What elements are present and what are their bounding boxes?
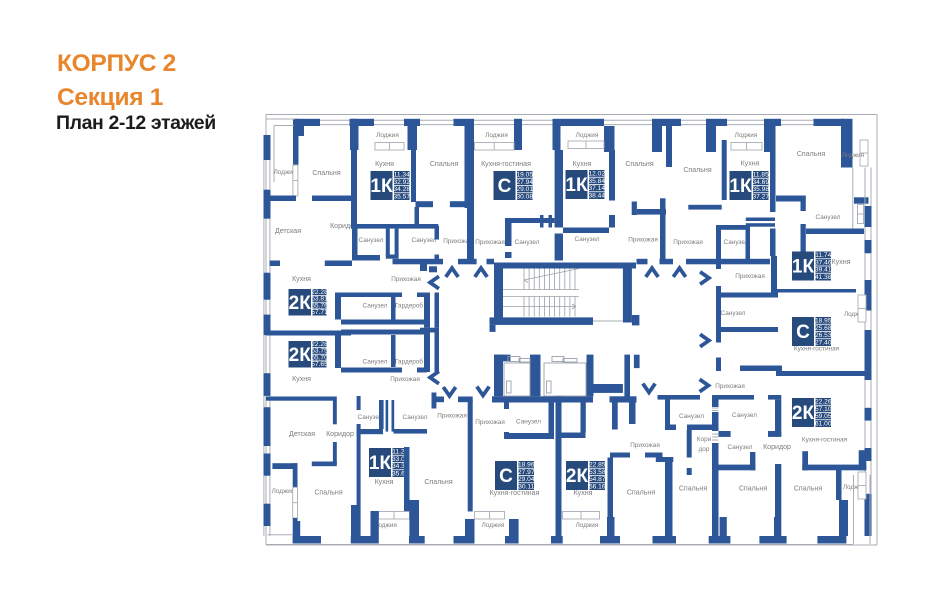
svg-text:29.01: 29.01: [516, 186, 533, 193]
svg-text:19.05: 19.05: [516, 172, 533, 179]
svg-text:Лоджия: Лоджия: [842, 152, 864, 159]
svg-text:Прихожая: Прихожая: [391, 276, 421, 283]
svg-text:Санузел: Санузел: [724, 239, 749, 246]
svg-text:12.02: 12.02: [588, 171, 605, 178]
svg-text:22.26: 22.26: [815, 399, 832, 406]
svg-text:Секция 1: Секция 1: [57, 84, 163, 111]
svg-text:30.08: 30.08: [516, 193, 533, 200]
svg-text:35.98: 35.98: [752, 186, 769, 193]
svg-text:1К: 1К: [370, 176, 393, 197]
svg-text:Детская: Детская: [289, 431, 315, 438]
svg-text:Коридор: Коридор: [326, 431, 354, 438]
svg-text:Спальня: Спальня: [314, 490, 342, 497]
svg-text:Коридор: Коридор: [763, 444, 791, 451]
svg-text:Кухня: Кухня: [292, 276, 311, 283]
svg-text:Лоджия: Лоджия: [735, 132, 758, 139]
svg-text:37.27: 37.27: [752, 193, 769, 200]
svg-text:Санузел: Санузел: [359, 237, 384, 244]
svg-text:Спальня: Спальня: [679, 486, 707, 493]
svg-text:Санузел: Санузел: [515, 239, 540, 246]
svg-text:Лоджия: Лоджия: [576, 132, 599, 139]
svg-text:34.69: 34.69: [752, 179, 769, 186]
svg-text:Санузел: Санузел: [516, 419, 541, 426]
svg-text:61.00: 61.00: [815, 420, 832, 427]
svg-text:32.92: 32.92: [393, 179, 410, 186]
svg-text:дор: дор: [699, 446, 710, 453]
svg-text:57.65: 57.65: [311, 361, 328, 368]
svg-text:С: С: [796, 322, 810, 343]
svg-text:Санузел: Санузел: [728, 444, 753, 451]
svg-text:35.84: 35.84: [588, 178, 605, 185]
svg-text:1К: 1К: [792, 257, 815, 278]
svg-text:Санузел: Санузел: [816, 214, 841, 221]
svg-text:Спальня: Спальня: [424, 479, 452, 486]
svg-text:37.14: 37.14: [588, 185, 605, 192]
svg-text:Санузел: Санузел: [358, 414, 383, 421]
svg-text:Спальня: Спальня: [627, 490, 655, 497]
svg-text:Кухня: Кухня: [375, 479, 394, 486]
svg-text:29.04: 29.04: [518, 476, 535, 483]
svg-text:Спальня: Спальня: [683, 167, 711, 174]
svg-text:Санузел: Санузел: [732, 412, 757, 419]
svg-text:41.38: 41.38: [815, 274, 832, 281]
svg-text:С: С: [498, 176, 512, 197]
svg-text:Кухня-гостиная: Кухня-гостиная: [802, 437, 848, 444]
svg-text:Гардероб: Гардероб: [395, 358, 423, 366]
svg-text:2К: 2К: [289, 293, 312, 314]
svg-text:34.28: 34.28: [393, 186, 410, 193]
svg-text:37.46: 37.46: [815, 259, 832, 266]
svg-text:Лоджия: Лоджия: [482, 522, 505, 529]
svg-text:Гардероб: Гардероб: [395, 302, 423, 310]
svg-text:Санузел: Санузел: [721, 310, 746, 317]
svg-text:Прихожая: Прихожая: [628, 237, 658, 244]
svg-text:2К: 2К: [289, 345, 312, 366]
svg-text:Прихожая: Прихожая: [715, 383, 745, 390]
svg-text:Лоджия: Лоджия: [485, 132, 508, 139]
svg-text:39.41: 39.41: [815, 267, 832, 274]
svg-text:Спальня: Спальня: [625, 161, 653, 168]
svg-text:35.57: 35.57: [393, 193, 410, 200]
svg-text:Кухня: Кухня: [573, 161, 592, 168]
svg-text:Кухня: Кухня: [574, 490, 593, 497]
svg-text:Кухня: Кухня: [292, 376, 311, 383]
svg-text:Спальня: Спальня: [312, 170, 340, 177]
svg-text:Кухня: Кухня: [741, 161, 760, 168]
svg-text:56.16: 56.16: [589, 483, 606, 490]
svg-text:Кухня-гостиная: Кухня-гостиная: [794, 346, 840, 353]
svg-text:27.97: 27.97: [518, 469, 535, 476]
svg-text:Санузел: Санузел: [412, 237, 437, 244]
svg-text:Лоджия: Лоджия: [576, 522, 599, 529]
svg-text:1К: 1К: [565, 175, 588, 196]
svg-text:54.87: 54.87: [589, 476, 606, 483]
svg-text:27.94: 27.94: [516, 179, 533, 186]
svg-text:Санузел: Санузел: [679, 413, 704, 420]
svg-text:КОРПУС 2: КОРПУС 2: [57, 50, 176, 77]
svg-text:Кухня: Кухня: [832, 259, 851, 266]
svg-text:Спальня: Спальня: [797, 151, 825, 158]
svg-text:Санузел: Санузел: [403, 414, 428, 421]
svg-text:57.10: 57.10: [815, 406, 832, 413]
svg-text:22.85: 22.85: [589, 462, 606, 469]
svg-text:2К: 2К: [566, 466, 589, 487]
svg-text:Санузел: Санузел: [363, 303, 388, 310]
svg-text:2К: 2К: [792, 403, 815, 424]
svg-text:Санузел: Санузел: [575, 236, 600, 243]
svg-text:Спальня: Спальня: [739, 486, 767, 493]
svg-text:Кори: Кори: [697, 436, 712, 443]
svg-text:Прихожая: Прихожая: [475, 239, 505, 246]
svg-text:Кухня-гостиная: Кухня-гостиная: [490, 490, 540, 497]
svg-text:11.74: 11.74: [815, 252, 831, 259]
svg-text:Санузел: Санузел: [363, 359, 388, 366]
svg-text:С: С: [499, 466, 513, 487]
svg-text:Детская: Детская: [275, 228, 301, 235]
svg-text:Прихожая: Прихожая: [390, 376, 420, 383]
svg-text:Прихожая: Прихожая: [630, 442, 660, 449]
svg-text:Прихожая: Прихожая: [475, 419, 505, 426]
svg-text:План 2-12 этажей: План 2-12 этажей: [56, 112, 216, 134]
svg-text:18.95: 18.95: [815, 318, 832, 325]
svg-text:Прихожая: Прихожая: [673, 239, 703, 246]
svg-text:Лоджия: Лоджия: [272, 488, 295, 495]
svg-text:18.96: 18.96: [518, 462, 535, 469]
svg-text:Лоджия: Лоджия: [376, 132, 399, 139]
svg-text:25.68: 25.68: [815, 325, 832, 332]
svg-text:57.71: 57.71: [311, 309, 328, 316]
svg-text:26.53: 26.53: [815, 332, 832, 339]
svg-text:Кухня: Кухня: [375, 161, 394, 168]
svg-text:53.58: 53.58: [589, 469, 606, 476]
svg-text:1К: 1К: [369, 453, 392, 474]
svg-text:11.34: 11.34: [394, 172, 410, 179]
svg-text:Прихожая: Прихожая: [437, 413, 467, 420]
svg-text:Прихожая: Прихожая: [735, 273, 765, 280]
svg-text:Спальня: Спальня: [794, 486, 822, 493]
svg-text:38.44: 38.44: [588, 192, 605, 199]
svg-text:59.05: 59.05: [815, 413, 832, 420]
svg-text:Спальня: Спальня: [430, 161, 458, 168]
svg-text:Кухня-гостиная: Кухня-гостиная: [481, 161, 531, 168]
svg-text:11.85: 11.85: [753, 172, 769, 179]
svg-text:1К: 1К: [729, 176, 752, 197]
